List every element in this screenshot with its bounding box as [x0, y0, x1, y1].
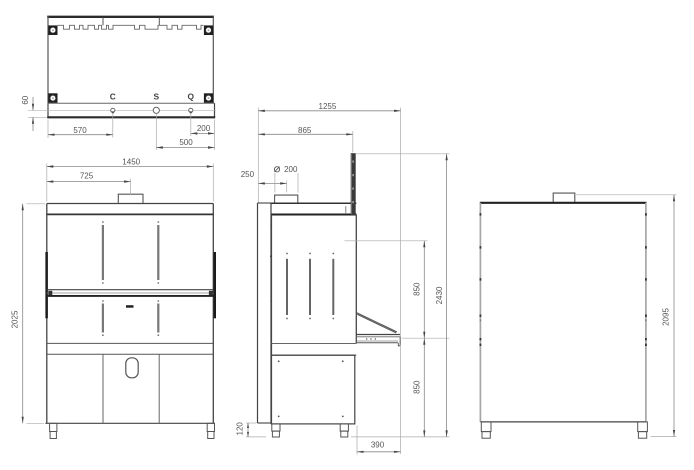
svg-text:C: C: [110, 91, 116, 101]
svg-text:570: 570: [73, 126, 87, 135]
svg-text:Q: Q: [188, 91, 195, 101]
svg-text:1450: 1450: [122, 157, 140, 166]
svg-text:2025: 2025: [10, 310, 19, 328]
svg-text:2095: 2095: [662, 308, 671, 326]
svg-text:200: 200: [197, 124, 211, 133]
svg-text:250: 250: [241, 170, 255, 179]
svg-text:120: 120: [236, 422, 245, 436]
svg-text:865: 865: [298, 126, 312, 135]
svg-text:390: 390: [371, 440, 385, 449]
svg-text:850: 850: [412, 380, 421, 394]
svg-text:850: 850: [412, 282, 421, 296]
svg-text:2430: 2430: [435, 286, 444, 304]
svg-text:500: 500: [179, 138, 193, 147]
svg-text:S: S: [154, 91, 160, 101]
svg-text:725: 725: [80, 172, 94, 181]
svg-text:60: 60: [21, 95, 30, 104]
svg-text:200: 200: [284, 165, 298, 174]
svg-text:1255: 1255: [319, 102, 337, 111]
